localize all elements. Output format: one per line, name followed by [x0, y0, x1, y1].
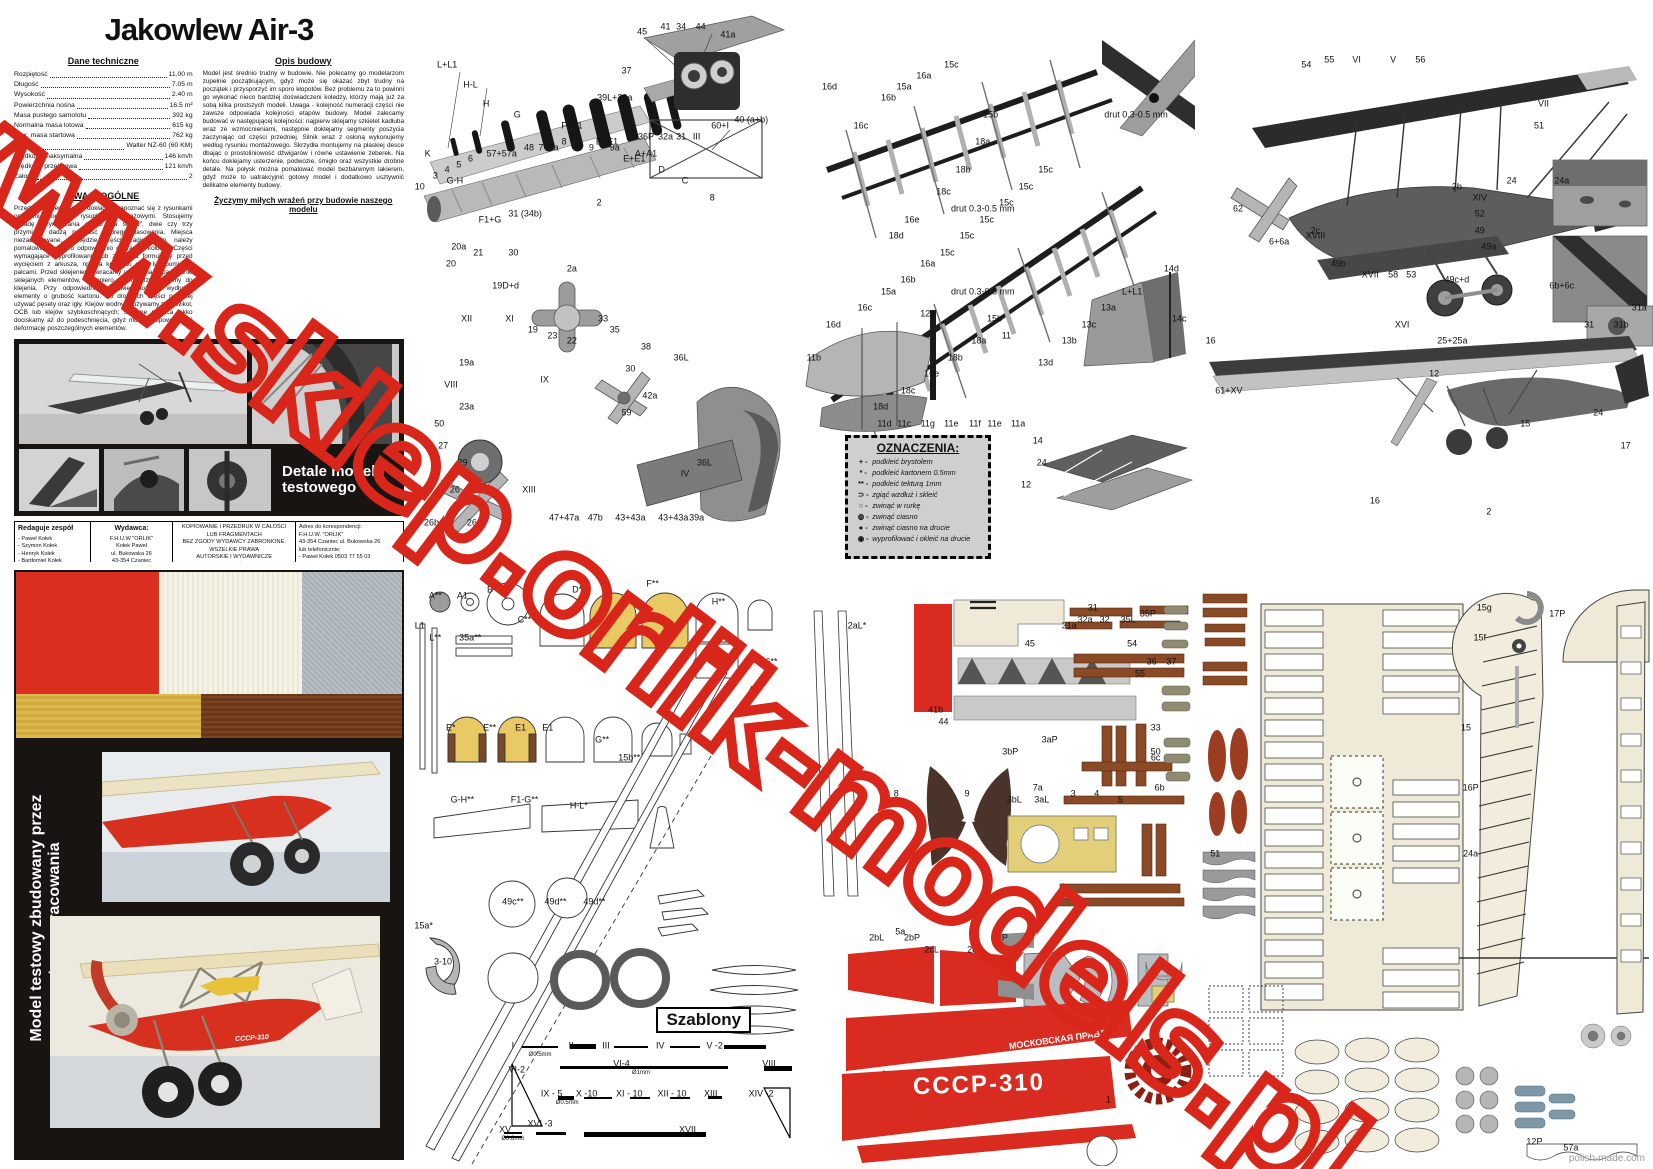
imprint-publisher-lines: F.H.U.W "ORLIK"Kołek Pawełul. Bukowska 2… [94, 536, 170, 563]
part-label: 13b [1062, 337, 1077, 346]
part-label: 49b [1331, 259, 1346, 268]
part-label: B** [487, 586, 500, 595]
general-notes-text: Przed sklejaniem należy dokładnie zapozn… [14, 205, 193, 333]
part-label: 16d [822, 83, 837, 92]
part-label: 2bL [869, 934, 884, 943]
part-label: K [425, 149, 431, 158]
part-label: 51 [1534, 121, 1544, 130]
part-label: VI-4 [613, 1060, 630, 1069]
part-label: 15b [987, 315, 1002, 324]
part-label: F+F1 [561, 121, 582, 130]
part-label: 18a [971, 337, 986, 346]
part-label: 17P [1549, 610, 1565, 619]
part-label: A+A1 [635, 149, 657, 158]
imprint-team-heading: Redaguje zespół [18, 524, 87, 533]
photo-engine-art [189, 449, 271, 511]
part-label: 29 [458, 458, 468, 467]
part-label: XV [499, 1126, 511, 1135]
part-label: E** [483, 724, 496, 733]
imprint-copyright-lines: KOPIOWANIE I PRZEDRUK W CAŁOŚCI LUB FRAG… [176, 524, 292, 562]
part-label: 26b [424, 519, 439, 528]
wing-part-labels: 16d16c16b15a16a15c15b18a18b18c16e18ddrut… [802, 10, 1195, 562]
part-label: 21 [473, 248, 483, 257]
part-label: 41a [720, 30, 735, 39]
swatch-gold [16, 694, 201, 738]
imprint-line: - Paweł Kołek [18, 536, 87, 544]
imprint-line: 43-354 Czaniec [94, 558, 170, 562]
part-label: IV [681, 469, 690, 478]
part-label: H [483, 99, 490, 108]
imprint-line: F.H.U.W "ORLIK" [94, 536, 170, 544]
test-model-photos: Detale modelu testowego [14, 339, 404, 516]
part-label: 11c [897, 420, 911, 429]
part-label: L1 [415, 622, 425, 631]
part-label: 4 [445, 166, 450, 175]
part-label: A1 [457, 592, 468, 601]
part-label: 16b [901, 276, 916, 285]
photo-fuselage-detail [252, 344, 399, 444]
colored-part-labels: 2aL*4541b443131a32a3235P35L3637335054557… [802, 566, 1195, 1166]
photo-tail-art [19, 449, 99, 511]
imprint-publisher-heading: Wydawca: [94, 524, 170, 533]
part-label: E* [446, 724, 456, 733]
part-label: 32 [1100, 616, 1110, 625]
part-label: 16e [924, 370, 939, 379]
part-label: II [569, 1042, 574, 1051]
part-label: 26** [760, 658, 777, 667]
imprint-team: Redaguje zespół - Paweł Kołek- Szymon Ko… [15, 522, 91, 562]
part-label: drut 0.3-0.8 mm [951, 287, 1015, 296]
part-label: 9a [610, 144, 620, 153]
part-label: XVII [679, 1126, 696, 1135]
part-label: L+L1 [437, 61, 457, 70]
part-label: F1+G [479, 215, 502, 224]
part-label: 15 [1461, 724, 1471, 733]
spec-row: Załoga2 [14, 172, 193, 182]
imprint-line: KOPIOWANIE I PRZEDRUK W CAŁOŚCI LUB FRAG… [176, 524, 292, 539]
imprint-line: 43-354 Czaniec ul. Bukowska 26 [299, 539, 400, 547]
part-label: 3bL [1007, 796, 1022, 805]
swatch-wood [201, 694, 402, 738]
part-label: 36L [697, 458, 712, 467]
part-label: Ø0.5mm [529, 1052, 552, 1058]
part-label: 3bP [1002, 748, 1018, 757]
part-label: 5 [456, 160, 461, 169]
part-label: XIV [1472, 193, 1487, 202]
part-label: 33 [598, 315, 608, 324]
part-label: 22 [567, 337, 577, 346]
part-label: 2aL* [848, 622, 867, 631]
part-label: 26 [450, 486, 460, 495]
imprint-publisher: Wydawca: F.H.U.W "ORLIK"Kołek Pawełul. B… [91, 522, 174, 562]
part-label: III [693, 132, 701, 141]
part-label: 31a [1632, 304, 1647, 313]
general-notes-heading: UWAGI OGÓLNE [14, 191, 193, 201]
photo-cockpit-art [104, 449, 184, 511]
colors-and-photos-panel: Model testowy zbudowany przez autora opr… [14, 570, 404, 1160]
build-text: Model jest średnio trudny w budowie. Nie… [203, 70, 404, 190]
part-label: 47+47a [549, 513, 579, 522]
part-label: 11d [877, 420, 891, 429]
part-label: 24 [1037, 458, 1047, 467]
specs-heading: Dane techniczne [14, 56, 193, 66]
photo-color-top-art [102, 752, 390, 902]
template-part-labels: A**A1B**C**D**F**F1H**L1L**35a**26**E*E*… [412, 566, 800, 1166]
part-label: 49d** [583, 898, 605, 907]
part-label: 18a [975, 138, 990, 147]
part-label: 31 [1584, 320, 1594, 329]
imprint-line: ul. Bukowska 26 [94, 551, 170, 559]
part-label: 15c [979, 215, 994, 224]
part-label: F** [646, 580, 659, 589]
part-label: 52 [1475, 210, 1485, 219]
part-label: 16 [1206, 337, 1216, 346]
part-label: 15f [1473, 634, 1486, 643]
swatch-red [16, 572, 159, 694]
part-label: 15c [940, 248, 955, 257]
part-label: XIV -2 [749, 1090, 774, 1099]
part-label: III [602, 1042, 610, 1051]
part-label: 15b [983, 110, 998, 119]
imprint-contact: Adres do korespondencji:F.H.U.W. "ORLIK"… [296, 522, 403, 562]
part-label: 49a [1481, 243, 1496, 252]
photo-tail-detail [19, 449, 99, 511]
imprint-line: - Szymon Kołek [18, 543, 87, 551]
part-label: XVII [1362, 270, 1379, 279]
spec-row: Max. masa startowa762 kg [14, 131, 193, 141]
part-label: 16P [1463, 784, 1479, 793]
part-label: 13c [1082, 320, 1097, 329]
part-label: 49d** [545, 898, 567, 907]
imprint-copyright: KOPIOWANIE I PRZEDRUK W CAŁOŚCI LUB FRAG… [173, 522, 296, 562]
part-label: 36P [638, 132, 654, 141]
printer-credit: polish-made.com [1569, 1153, 1645, 1164]
part-label: 6c [1151, 754, 1161, 763]
part-label: L** [429, 634, 441, 643]
part-label: VIII [444, 381, 458, 390]
photo-color-top [102, 752, 390, 902]
part-label: 7+7a [538, 144, 558, 153]
part-label: I [512, 1042, 515, 1051]
part-label: 15a* [414, 922, 433, 931]
part-label: 11 [1002, 331, 1011, 340]
part-label: 44 [696, 22, 706, 31]
imprint-line: - Paweł Kołek 0503 77 55 03 [299, 554, 400, 562]
spec-row: Normalna masa lotowa615 kg [14, 121, 193, 131]
part-label: 2P [997, 934, 1008, 943]
part-label: 39a [689, 513, 704, 522]
part-label: 45 [637, 28, 647, 37]
part-label: H-L* [570, 802, 588, 811]
paper-color-swatches [14, 570, 404, 738]
part-label: Ø0.8mm [501, 1136, 524, 1142]
part-label: 61+XV [1215, 386, 1242, 395]
part-label: 10 [415, 182, 425, 191]
spec-row: Rozpiętość11.00 m [14, 70, 193, 80]
part-label: F1-G** [511, 796, 539, 805]
part-label: VI-2 [508, 1066, 525, 1075]
part-label: 14d [1164, 265, 1179, 274]
part-label: drut 0.3-0.5 mm [1104, 110, 1168, 119]
part-label: 14 [1033, 436, 1043, 445]
part-label: 6 [468, 155, 473, 164]
part-label: 50 [434, 420, 444, 429]
part-label: 20a [451, 243, 466, 252]
fuselage-assembly-diagrams: L+L1H-LHKG-HGF1+GF+F1E+E1E+E1DC8302a4541… [412, 10, 802, 562]
spec-row: Prędkość przelotowa121 km/h [14, 162, 193, 172]
part-label: 54 [1301, 61, 1311, 70]
part-label: 15b** [618, 754, 640, 763]
part-label: 20 [446, 259, 456, 268]
page-title: Jakowlew Air-3 [14, 12, 404, 48]
part-label: 6b [1155, 784, 1165, 793]
spec-row: Masa pustego samolotu392 kg [14, 111, 193, 121]
part-label: 18d [889, 232, 904, 241]
photo-cockpit-detail [104, 449, 184, 511]
part-label: 31a [1062, 622, 1077, 631]
part-label: IX - 5 [541, 1090, 563, 1099]
part-label: 40 (a+b) [734, 116, 768, 125]
part-label: 34 [676, 22, 686, 31]
part-label: 2cP [967, 946, 983, 955]
part-label: 31b [1614, 320, 1629, 329]
part-label: 30 [625, 364, 635, 373]
part-label: 36L [674, 353, 689, 362]
part-label: IV [656, 1042, 665, 1051]
imprint-contact-lines: Adres do korespondencji:F.H.U.W. "ORLIK"… [299, 524, 400, 562]
spec-row: Prędkość maksymalna146 km/h [14, 152, 193, 162]
part-label: 15c [1038, 166, 1053, 175]
part-label: 57a [1563, 1144, 1578, 1153]
fuselage-part-labels: L+L1H-LHKG-HGF1+GF+F1E+E1E+E1DC8302a4541… [412, 10, 802, 562]
part-label: 15 [1520, 420, 1530, 429]
part-label: 12 [1021, 480, 1031, 489]
swatch-grey [302, 572, 402, 694]
part-label: XI - 10 [616, 1090, 643, 1099]
part-label: 8 [894, 790, 899, 799]
part-label: 51 [1210, 850, 1220, 859]
photo-model-side [19, 344, 247, 444]
skeleton-part-labels: 15g15f17P1516P24a5112P57a [1197, 566, 1653, 1166]
part-label: 2 [1486, 508, 1491, 517]
part-label: 16 [1370, 497, 1380, 506]
part-label: 33 [1151, 724, 1161, 733]
part-label: XIII [704, 1090, 718, 1099]
part-label: VII [1538, 99, 1549, 108]
part-label: 18c [901, 386, 916, 395]
part-label: 16d [826, 320, 841, 329]
photo-engine-detail [189, 449, 271, 511]
part-label: 11f [969, 420, 981, 429]
scanned-instruction-sheet: Jakowlew Air-3 Dane techniczne Rozpiętoś… [0, 0, 1653, 1169]
part-label: 3aL [1034, 796, 1049, 805]
part-label: D [658, 166, 665, 175]
part-label: 44 [938, 718, 948, 727]
part-label: XVI -3 [528, 1120, 553, 1129]
part-label: 1 [1106, 1096, 1111, 1105]
part-label: 2a [567, 265, 577, 274]
assembled-view-labels: 5455VIV56VII512424a2bXIV524949a49c+d5358… [1197, 10, 1653, 562]
part-label: 35L [1121, 616, 1136, 625]
photo-fuselage-detail-art [252, 344, 392, 444]
part-label: 43+43a [615, 513, 645, 522]
part-label: F1 [663, 622, 674, 631]
part-label: 41b [928, 706, 943, 715]
part-label: G** [595, 736, 609, 745]
photo-model-side-art [19, 344, 247, 444]
part-label: 56 [1415, 55, 1425, 64]
part-label: 11b [807, 353, 821, 362]
part-label: 18b [956, 166, 971, 175]
part-label: 18c [936, 188, 951, 197]
part-label: G-H [447, 177, 464, 186]
part-label: 11a [1011, 420, 1025, 429]
part-label: 23a [459, 403, 474, 412]
assembled-views-panel: 5455VIV56VII512424a2bXIV524949a49c+d5358… [1197, 10, 1653, 562]
part-label: 24a [1463, 850, 1478, 859]
part-label: 17 [1621, 442, 1631, 451]
part-label: 25+25a [1437, 337, 1467, 346]
part-label: 24 [1593, 408, 1603, 417]
imprint-line: AUTORSKIE I WYDAWNICZE ZASTRZEŻONE. [176, 554, 292, 562]
spec-row: Długość7.05 m [14, 80, 193, 90]
part-label: 39L+39a [597, 94, 632, 103]
part-label: 15g [1477, 604, 1492, 613]
part-label: 35a** [459, 634, 481, 643]
part-label: 58 [1388, 270, 1398, 279]
part-label: 2L [1013, 976, 1023, 985]
part-label: 15c [960, 232, 975, 241]
spec-row: Powierzchnia nośna16.5 m² [14, 101, 193, 111]
part-label: 11g [921, 420, 935, 429]
part-label: 54 [1127, 640, 1137, 649]
imprint-line: BEZ ZGODY WYDAWCY ZABRONIONE. WSZELKIE P… [176, 539, 292, 554]
part-label: XI [505, 315, 514, 324]
part-label: 14c [1172, 315, 1187, 324]
part-label: 16c [858, 304, 873, 313]
part-label: 15a [897, 83, 912, 92]
part-label: D** [572, 586, 586, 595]
part-label: 15a [881, 287, 896, 296]
part-label: 60+I [711, 121, 729, 130]
part-label: 2bP [904, 934, 920, 943]
part-label: 26a [467, 519, 482, 528]
imprint-line: lub telefonicznie: [299, 547, 400, 555]
specs-table: Rozpiętość11.00 mDługość7.05 mWysokość2.… [14, 70, 193, 182]
skeleton-sheet-panel: 15g15f17P1516P24a5112P57a [1197, 566, 1653, 1166]
part-label: 9 [965, 790, 970, 799]
part-label: 37 [1166, 658, 1176, 667]
part-label: H** [712, 598, 726, 607]
part-label: 6+6a [1269, 237, 1289, 246]
part-label: 36 [1147, 658, 1157, 667]
part-label: 24a [1554, 177, 1569, 186]
part-label: 12 [1429, 370, 1439, 379]
wing-frame-diagrams: OZNACZENIA: + -podkleić brystolem* -podk… [802, 10, 1195, 562]
part-label: 15c [1019, 182, 1034, 191]
title-page-panel: Jakowlew Air-3 Dane techniczne Rozpiętoś… [14, 10, 404, 562]
part-label: 41 [660, 22, 670, 31]
part-label: V [1390, 55, 1396, 64]
part-label: 43+43a [658, 513, 688, 522]
part-label: 49c+d [1445, 276, 1470, 285]
part-label: 3 [1071, 790, 1076, 799]
imprint-line: - Henryk Kołek [18, 551, 87, 559]
part-label: 55 [1324, 55, 1334, 64]
part-label: 57+57a [487, 149, 517, 158]
imprint-line: F.H.U.W. "ORLIK" [299, 532, 400, 540]
wish-line: Życzymy miłych wrażeń przy budowie nasze… [203, 196, 404, 214]
part-label: 59 [621, 408, 631, 417]
part-label: Ø1mm [632, 1070, 650, 1076]
part-label: 8 [562, 138, 567, 147]
part-label: 11e [944, 420, 958, 429]
part-label: 37 [621, 66, 631, 75]
part-label: 55 [1135, 670, 1145, 679]
part-label: 18b [948, 353, 963, 362]
part-label: 32a [658, 132, 673, 141]
imprint-line: Adres do korespondencji: [299, 524, 400, 532]
part-label: C [682, 177, 689, 186]
part-label: 8 [710, 193, 715, 202]
part-label: 12P [1526, 1138, 1542, 1147]
part-label: XII - 10 [657, 1090, 686, 1099]
part-label: G [514, 110, 521, 119]
photo-color-main-art [50, 916, 380, 1128]
colored-parts-sheet-panel: МОСКОВСКАЯ ПРАВДА CCCP-310 2aL*4541b4431… [802, 566, 1195, 1166]
part-label: IX [540, 375, 549, 384]
imprint-line: - Bartłomiej Kołek [18, 558, 87, 562]
part-label: 18d [873, 403, 888, 412]
part-label: 19D+d [492, 282, 519, 291]
imprint-team-lines: - Paweł Kołek- Szymon Kołek- Henryk Kołe… [18, 536, 87, 563]
photo-color-main: CCCP-310 [50, 916, 380, 1128]
part-label: 32a [1077, 616, 1092, 625]
part-label: 11e [987, 420, 1001, 429]
part-label: 12a [920, 309, 935, 318]
part-label: 35 [610, 326, 620, 335]
part-label: L+L1 [1122, 287, 1142, 296]
part-label: G-H** [451, 796, 475, 805]
part-label: C** [518, 616, 532, 625]
part-label: E1 [542, 724, 553, 733]
part-label: 2 [597, 199, 602, 208]
part-label: 31 [676, 132, 686, 141]
part-label: XVI [1395, 320, 1410, 329]
part-label: 16a [916, 72, 931, 81]
part-label: 6b+6c [1549, 282, 1574, 291]
spec-row: SilnikWalter NZ-60 (60 KM) [14, 141, 193, 151]
part-label: 13d [1038, 359, 1053, 368]
part-label: Ø0.5mm [556, 1100, 579, 1106]
part-label: 4 [1094, 790, 1099, 799]
part-label: VI [1352, 55, 1361, 64]
part-label: 16c [854, 121, 869, 130]
part-label: 30 [508, 248, 518, 257]
part-label: 31 (34b) [508, 210, 542, 219]
swatch-cream [159, 572, 302, 694]
part-label: 9 [589, 144, 594, 153]
part-label: 16a [920, 259, 935, 268]
part-label: 24 [1507, 177, 1517, 186]
part-label: 49 [1475, 226, 1485, 235]
part-label: 7a [1033, 784, 1043, 793]
part-label: 16e [905, 215, 920, 224]
templates-sheet-panel: Szablony A**A1B**C**D**F**F1H**L1L**35a*… [412, 566, 800, 1166]
part-label: 49c** [502, 898, 524, 907]
part-label: 62 [1233, 204, 1243, 213]
part-label: 48 [524, 144, 534, 153]
